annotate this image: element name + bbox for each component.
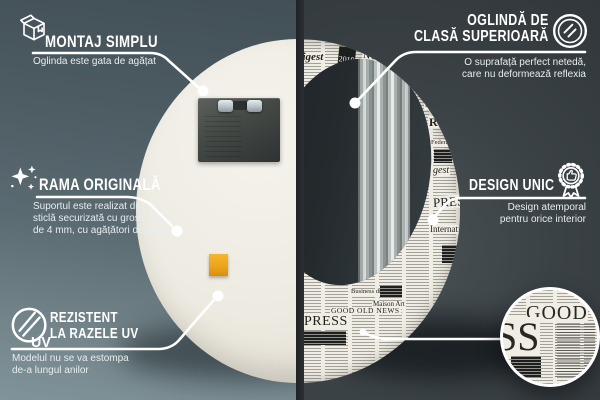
news-block (434, 149, 452, 163)
uv-title-line1: REZISTENT (50, 310, 138, 326)
award-badge-icon (553, 160, 589, 202)
hanger-bracket-right (247, 100, 262, 112)
rama-subtitle-line1: Suportul este realizat din (33, 201, 170, 213)
premium-subtitle-line1: O suprafață perfect netedă, (462, 57, 586, 69)
premium-title-line2: CLASĂ SUPERIOARĂ (414, 29, 549, 45)
uv-subtitle-line2: de-a lungul anilor (12, 365, 129, 377)
mounting-plate-stamp (205, 116, 241, 160)
detail-word-ss: SS (500, 317, 540, 357)
orange-label-sticker (209, 254, 228, 276)
sparkles-icon (7, 163, 39, 195)
rama-subtitle-line3: de 4 mm, cu agățători dedicate (33, 225, 170, 237)
design-subtitle-line1: Design atemporal (500, 202, 586, 214)
design-title: DESIGN UNIC (469, 177, 554, 195)
rama-subtitle-line2: sticlă securizată cu grosimea (33, 213, 170, 225)
premium-subtitle-line2: care nu deformează reflexia (462, 69, 586, 81)
hanger-bracket-left (218, 100, 233, 112)
detail-dark-block (511, 356, 541, 378)
split-divider (296, 0, 304, 400)
hanger-bracket-middle (233, 101, 247, 110)
news-fragment: PRESS (303, 315, 349, 329)
reflection-curtain (358, 46, 410, 298)
montaj-subtitle: Oglinda este gata de agățat (33, 56, 156, 68)
newsprint-zoom-detail: GOOD SS (500, 287, 600, 387)
news-fragment: gest (432, 166, 450, 176)
design-subtitle-line2: pentru orice interior (500, 214, 586, 226)
uv-title-line2: LA RAZELE UV (50, 326, 138, 342)
rama-title: RAMA ORIGINALĂ (39, 175, 161, 195)
product-infographic: digest 2019 NEWS arist Internatio R Fede… (0, 0, 600, 400)
mirror-icon (551, 12, 589, 50)
news-fragment: Internation (429, 225, 460, 234)
uv-icon-label: UV (31, 335, 51, 350)
news-block (304, 331, 346, 345)
premium-title-line1: OGLINDĂ DE (414, 13, 549, 29)
uv-subtitle-line1: Modelul nu se va estompa (12, 353, 129, 365)
news-block (442, 245, 458, 263)
uv-circle-icon: UV (9, 306, 53, 350)
news-fragment: PRESS (432, 194, 460, 209)
detail-fine-text (555, 324, 595, 378)
montaj-title: MONTAJ SIMPLU (45, 32, 158, 52)
news-fragment: arist (382, 47, 394, 53)
